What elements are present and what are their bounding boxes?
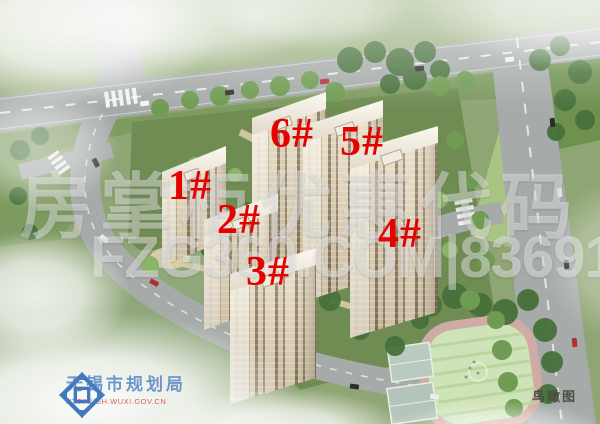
planning-bureau-logo-icon [56, 370, 108, 420]
building-label-1: 1# [168, 168, 212, 206]
planning-bureau-stamp: 无锡市规划局 HTTP://GH.WUXI.GOV.CN [56, 370, 186, 406]
view-caption: 鸟瞰图 [532, 386, 577, 405]
watermark-site-text: FZG360.COM|836918 [90, 224, 600, 291]
building-label-5: 5# [340, 124, 384, 162]
aerial-render: 房掌柜优惠代码 FZG360.COM|836918 1# 2# 3# 4# 5#… [0, 0, 600, 424]
building-label-3: 3# [246, 254, 290, 292]
building-label-6: 6# [270, 116, 314, 154]
building-label-2: 2# [217, 202, 261, 240]
building-label-4: 4# [378, 216, 422, 254]
